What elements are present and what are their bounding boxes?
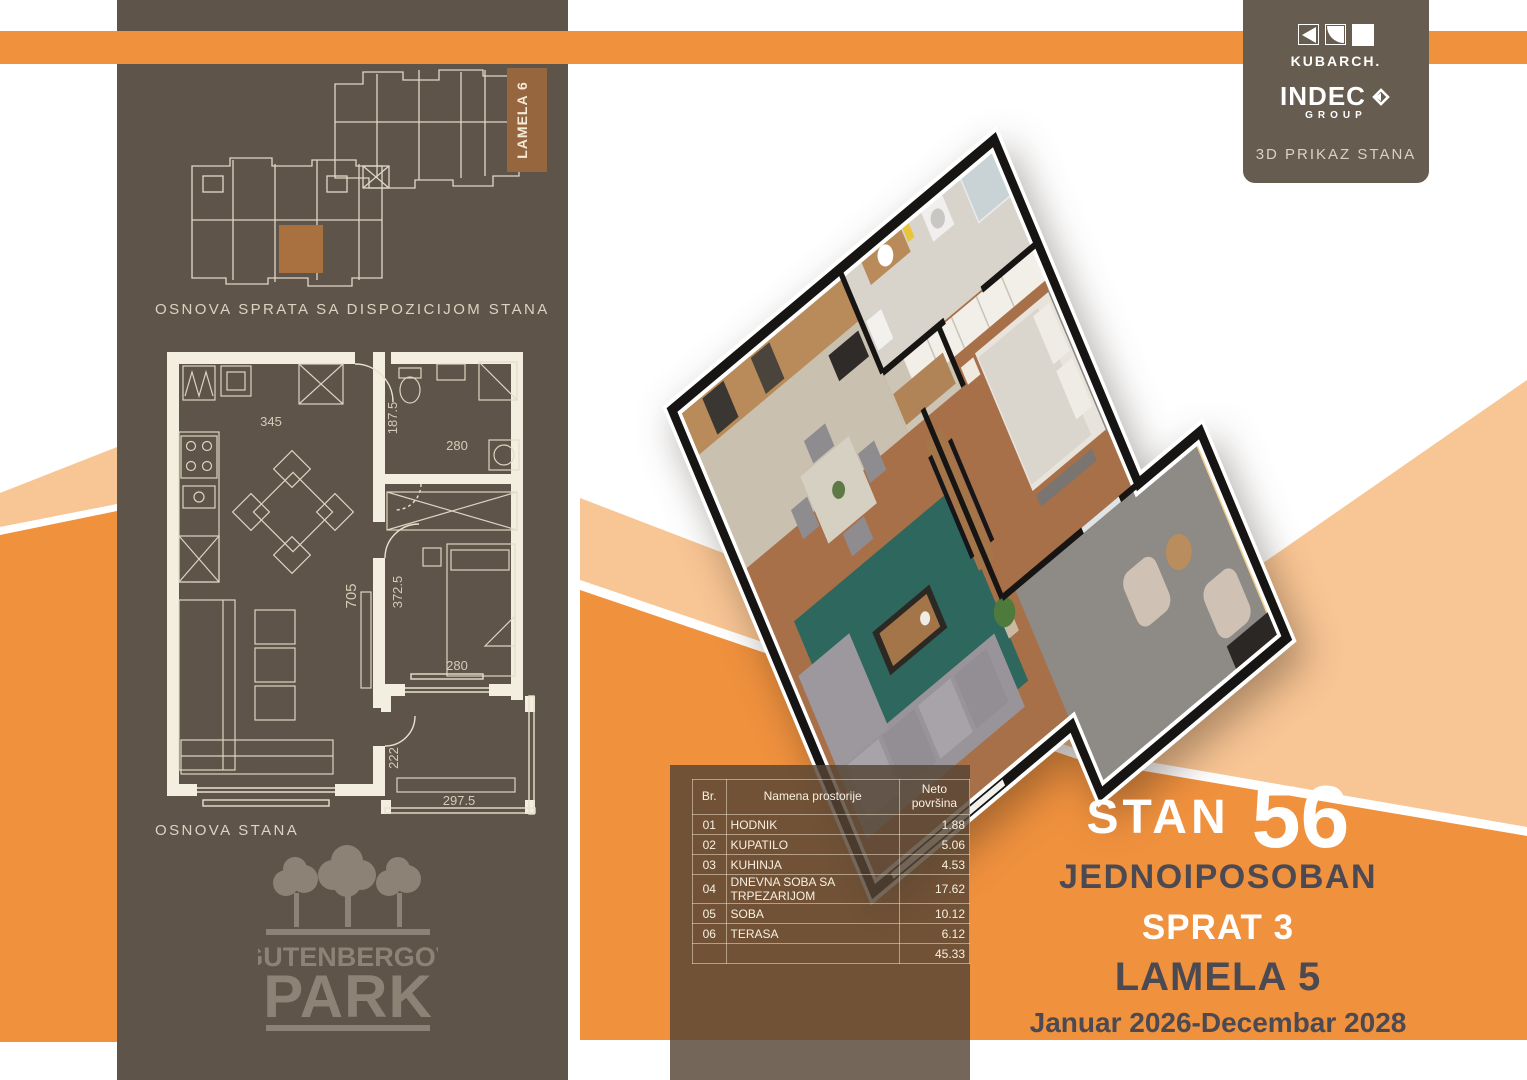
row-name: KUHINJA <box>726 855 899 875</box>
row-no: 02 <box>693 835 727 855</box>
row-no: 01 <box>693 815 727 835</box>
row-no: 03 <box>693 855 727 875</box>
row-no: 04 <box>693 875 727 904</box>
area-table-panel: Br. Namena prostorije Neto površina 01 H… <box>670 765 970 1080</box>
unit-type: JEDNOIPOSOBAN <box>1008 858 1428 897</box>
stan-label: STAN <box>1087 790 1230 845</box>
total-area: 45.33 <box>899 944 969 964</box>
floor-label: SPRAT 3 <box>1008 908 1428 948</box>
table-total-row: 45.33 <box>693 944 970 964</box>
total-empty <box>693 944 727 964</box>
row-name: HODNIK <box>726 815 899 835</box>
header-area-line1: Neto <box>922 782 947 796</box>
table-row: 01 HODNIK 1.88 <box>693 815 970 835</box>
table-row: 03 KUHINJA 4.53 <box>693 855 970 875</box>
header-no: Br. <box>693 780 727 815</box>
total-empty <box>726 944 899 964</box>
row-name: DNEVNA SOBA SA TRPEZARIJOM <box>726 875 899 904</box>
row-name: KUPATILO <box>726 835 899 855</box>
header-area: Neto površina <box>899 780 969 815</box>
construction-period: Januar 2026-Decembar 2028 <box>1008 1007 1428 1039</box>
stan-number: 56 <box>1252 782 1350 852</box>
row-no: 05 <box>693 904 727 924</box>
row-area: 1.88 <box>899 815 969 835</box>
row-name: TERASA <box>726 924 899 944</box>
header-area-line2: površina <box>912 796 957 810</box>
apartment-info-block: STAN 56 JEDNOIPOSOBAN SPRAT 3 LAMELA 5 J… <box>1008 778 1428 1039</box>
row-area: 5.06 <box>899 835 969 855</box>
row-area: 6.12 <box>899 924 969 944</box>
table-row: 04 DNEVNA SOBA SA TRPEZARIJOM 17.62 <box>693 875 970 904</box>
table-row: 05 SOBA 10.12 <box>693 904 970 924</box>
row-no: 06 <box>693 924 727 944</box>
brochure-page: LAMELA 6 OSNOVA SPRATA SA DISPOZICIJOM S… <box>0 0 1527 1080</box>
stan-title: STAN 56 <box>1008 778 1428 856</box>
row-name: SOBA <box>726 904 899 924</box>
row-area: 4.53 <box>899 855 969 875</box>
area-table: Br. Namena prostorije Neto površina 01 H… <box>692 779 970 964</box>
lamela-label: LAMELA 5 <box>1008 955 1428 1000</box>
table-row: 02 KUPATILO 5.06 <box>693 835 970 855</box>
table-header-row: Br. Namena prostorije Neto površina <box>693 780 970 815</box>
row-area: 10.12 <box>899 904 969 924</box>
table-row: 06 TERASA 6.12 <box>693 924 970 944</box>
row-area: 17.62 <box>899 875 969 904</box>
header-name: Namena prostorije <box>726 780 899 815</box>
